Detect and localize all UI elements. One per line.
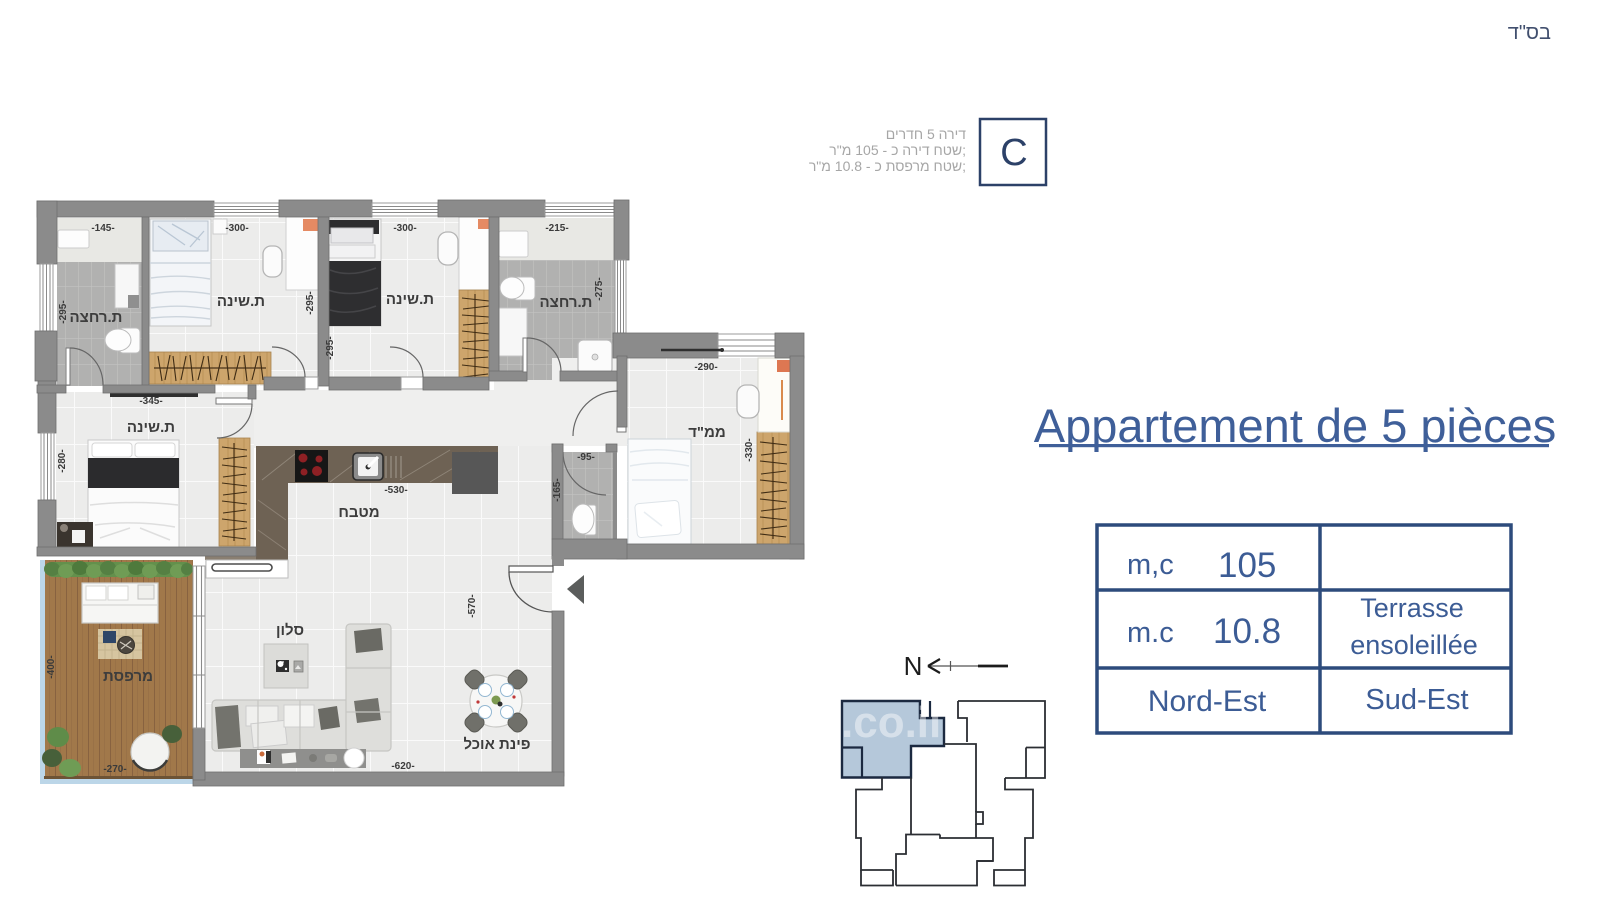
svg-text:-165-: -165-	[552, 478, 563, 501]
svg-text:בס"ד: בס"ד	[1508, 22, 1551, 44]
svg-text:-530-: -530-	[384, 485, 407, 496]
svg-text:שטח דירה כ - 105 מ"ר;: שטח דירה כ - 105 מ"ר;	[829, 142, 966, 158]
svg-text:ת.רחצה: ת.רחצה	[540, 294, 593, 311]
svg-text:Nord-Est: Nord-Est	[1148, 685, 1267, 718]
svg-text:-300-: -300-	[393, 223, 416, 234]
svg-text:N: N	[904, 651, 923, 681]
svg-text:שטח מרפסת כ - 10.8 מ"ר;: שטח מרפסת כ - 10.8 מ"ר;	[809, 158, 966, 174]
svg-text:-145-: -145-	[91, 223, 114, 234]
svg-text:-570-: -570-	[467, 594, 478, 617]
svg-text:Terrasse: Terrasse	[1360, 593, 1464, 623]
svg-text:-400-: -400-	[46, 655, 57, 678]
svg-text:-295-: -295-	[325, 336, 336, 359]
svg-text:-215-: -215-	[545, 223, 568, 234]
svg-text:-295-: -295-	[58, 300, 69, 323]
svg-text:-95-: -95-	[577, 452, 595, 463]
svg-text:-270-: -270-	[103, 764, 126, 775]
svg-text:מרפסת: מרפסת	[103, 668, 153, 685]
svg-text:-290-: -290-	[694, 362, 717, 373]
svg-text:C: C	[1000, 132, 1027, 174]
svg-text:m.c: m.c	[1127, 617, 1174, 649]
svg-text:דירה 5 חדרים: דירה 5 חדרים	[886, 126, 966, 142]
svg-text:-280-: -280-	[57, 449, 68, 472]
svg-text:ת.שינה: ת.שינה	[386, 291, 434, 308]
svg-text:105: 105	[1218, 546, 1276, 585]
svg-text:מטבח: מטבח	[338, 504, 379, 521]
svg-text:m,c: m,c	[1127, 549, 1174, 581]
svg-text:-300-: -300-	[225, 223, 248, 234]
svg-text:-330-: -330-	[744, 438, 755, 461]
svg-text:ת.שינה: ת.שינה	[127, 419, 175, 436]
svg-text:.co.il: .co.il	[841, 698, 941, 747]
svg-text:ת.שינה: ת.שינה	[217, 293, 265, 310]
svg-text:ensoleillée: ensoleillée	[1350, 630, 1478, 660]
svg-text:-345-: -345-	[139, 396, 162, 407]
svg-text:-620-: -620-	[391, 761, 414, 772]
svg-text:-295-: -295-	[305, 291, 316, 314]
svg-text:Sud-Est: Sud-Est	[1365, 684, 1468, 716]
svg-text:ת.רחצה: ת.רחצה	[70, 309, 123, 326]
svg-text:ממ"ד: ממ"ד	[688, 424, 726, 441]
svg-text:סלון: סלון	[276, 622, 304, 639]
svg-text:-275-: -275-	[594, 277, 605, 300]
svg-text:10.8: 10.8	[1213, 612, 1281, 651]
svg-text:פינת אוכל: פינת אוכל	[463, 736, 530, 753]
